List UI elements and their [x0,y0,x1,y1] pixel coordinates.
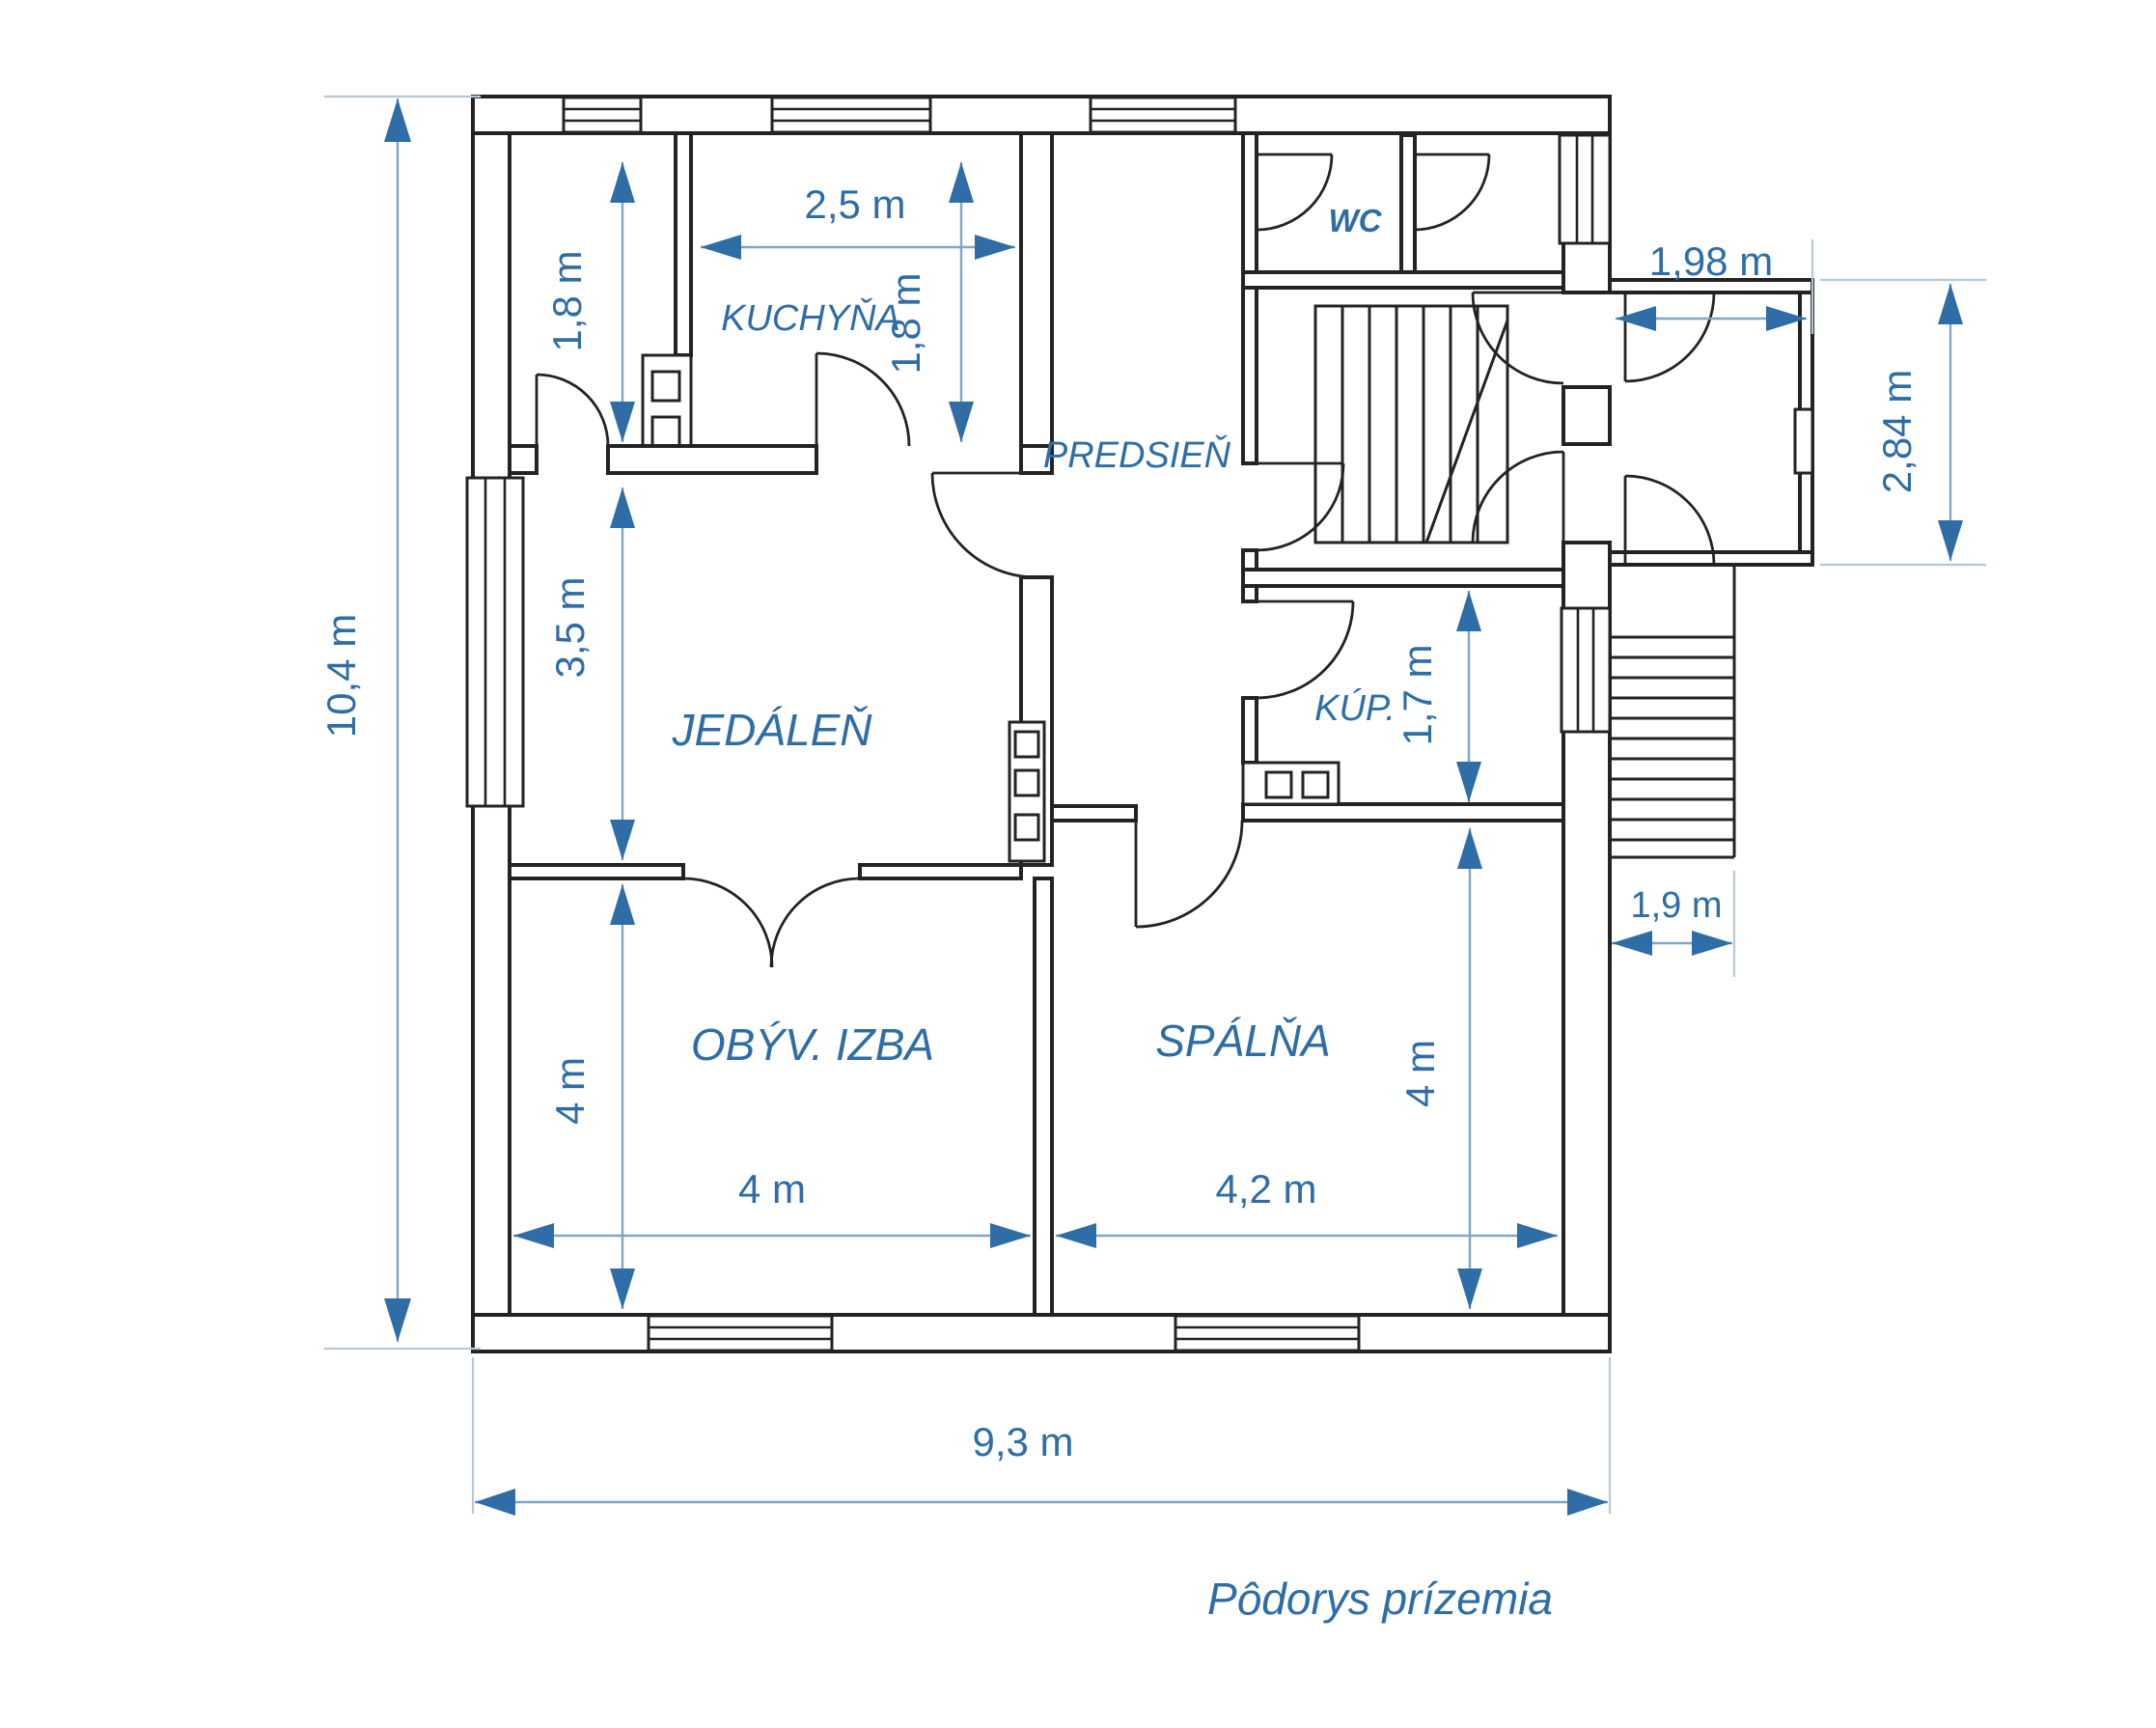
dimension-bedroom-width: 4,2 m [1056,1166,1558,1248]
dim-label-living-depth: 4 m [547,1057,593,1125]
window-right-bath [1562,608,1610,732]
window-bottom-living [649,1316,832,1351]
room-label-hall: PREDSIEŇ [1043,434,1231,476]
dim-label-pantry-depth: 1,8 m [544,250,590,351]
room-label-dining: JEDÁLEŇ [671,705,872,755]
door-wc [1257,154,1332,230]
door-porch-upper [1625,293,1714,381]
window-left-dining [467,478,523,806]
door-bedroom [1136,821,1242,927]
staircase-exterior [1610,565,1734,994]
dim-label-house-height: 10,4 m [318,614,364,738]
floor-plan-page: 10,4 m 9,3 m 2,5 m 1,8 m 1,8 m 3,5 m [0,0,2156,1728]
room-label-living: OBÝV. IZBA [691,1019,934,1070]
dim-label-porch-depth: 2,84 m [1874,370,1920,493]
window-top-hall [1091,98,1235,132]
dim-label-bath-depth: 1,7 m [1395,644,1440,745]
room-label-bedroom: SPÁLŇA [1155,1016,1331,1066]
dimension-house-width: 9,3 m [473,1357,1610,1516]
dim-label-stairs-width: 1,9 m [1630,885,1722,926]
door-pantry [537,375,608,446]
dimension-bedroom-depth: 4 m [1397,828,1482,1309]
door-entry-lower [1473,452,1563,543]
dim-label-living-width: 4 m [738,1166,806,1212]
dim-label-house-width: 9,3 m [972,1419,1073,1464]
dim-label-porch-width: 1,98 m [1649,238,1773,284]
window-top-pantry [564,98,641,132]
dimension-living-width: 4 m [513,1166,1031,1248]
dimension-porch-depth: 2,84 m [1820,280,1986,565]
chimney-top-right [1560,135,1610,243]
room-label-bath: KÚP. [1314,687,1396,729]
dimension-dining-depth: 3,5 m [547,488,635,860]
window-bottom-bedroom [1175,1316,1359,1351]
dim-label-dining-depth: 3,5 m [547,576,593,678]
floor-plan-title: Pôdorys prízemia [1207,1574,1553,1624]
dim-label-bedroom-width: 4,2 m [1215,1166,1316,1212]
door-top-right-room [1414,154,1489,230]
door-dining [932,473,1037,577]
dimension-house-height: 10,4 m [318,97,481,1349]
floor-plan-drawing: 10,4 m 9,3 m 2,5 m 1,8 m 1,8 m 3,5 m [0,0,2156,1728]
dim-label-kitchen-width: 2,5 m [804,181,905,227]
door-hall-to-stairs [1257,463,1343,550]
dim-label-bedroom-depth: 4 m [1397,1040,1443,1107]
room-label-kitchen: KUCHYŇA [721,297,900,339]
door-living-double [683,878,860,967]
door-bathroom [1257,601,1353,698]
dimension-bath-depth: 1,7 m [1395,591,1481,802]
dimension-stairs-width: 1,9 m [1612,871,1734,977]
room-label-wc: WC [1329,203,1383,238]
window-top-kitchen [772,98,930,132]
dimension-living-depth: 4 m [547,884,635,1309]
